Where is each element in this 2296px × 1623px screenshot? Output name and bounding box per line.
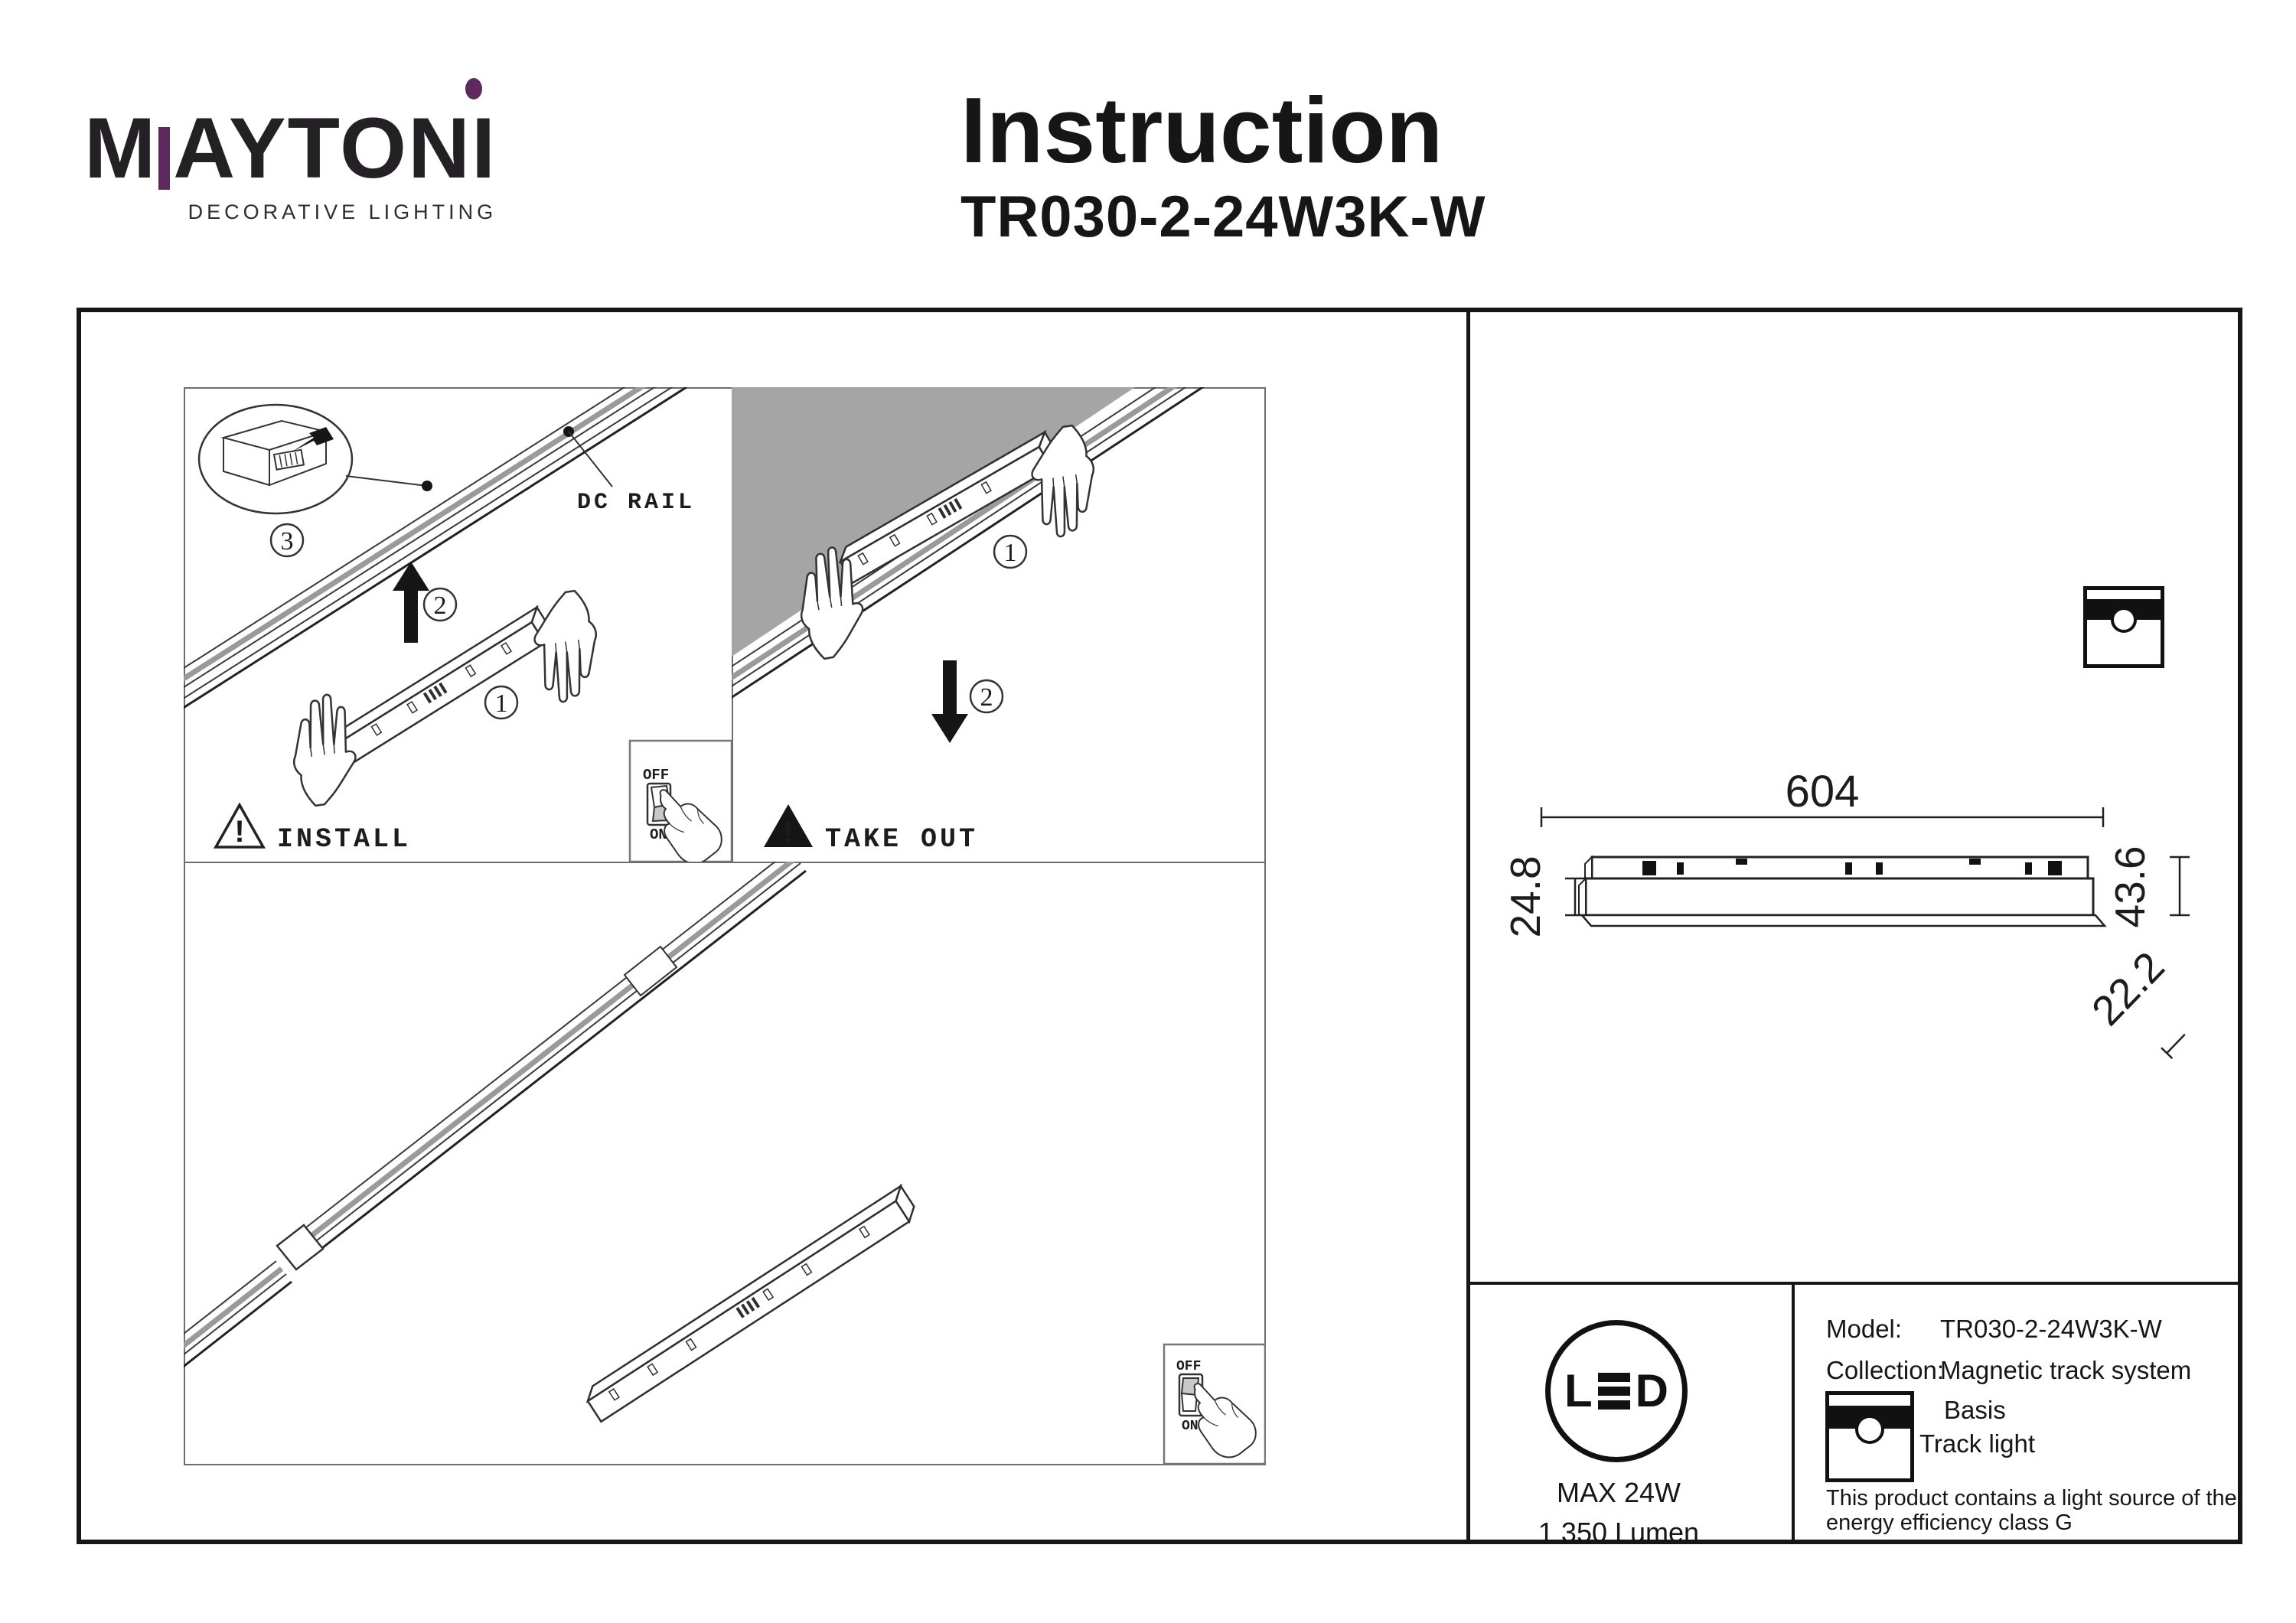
lens-circle <box>1855 1415 1884 1444</box>
warning-mark: ! <box>784 816 794 849</box>
maytoni-wordmark: M AYTON I <box>84 106 497 191</box>
type-basis: Basis <box>1944 1396 2006 1425</box>
width-dim: 22.2 <box>2082 943 2174 1035</box>
step-2-badge: 2 <box>980 683 993 712</box>
led-letter-d: D <box>1636 1368 1668 1414</box>
switch-on-label: ON <box>1182 1419 1199 1434</box>
page-model-code: TR030-2-24W3K-W <box>960 184 1486 250</box>
install-switch-inset: OFF ON <box>630 741 732 863</box>
collection-label: Collection: <box>1826 1356 1944 1385</box>
step-1-badge: 1 <box>1004 539 1017 567</box>
instruction-illustrations: 3 DC RAIL 2 <box>184 387 1266 1465</box>
takeout-panel-art: 1 2 ! TAKE OUT <box>714 387 1211 855</box>
dimension-drawing: 604 24.8 43.6 22.2 <box>1468 308 2242 1282</box>
down-arrow-icon <box>931 660 968 743</box>
maytoni-logo: M AYTON I DECORATIVE LIGHTING <box>84 106 497 224</box>
efficiency-note-line2: energy efficiency class G <box>1826 1511 2073 1536</box>
right-vertical-divider <box>1792 1282 1795 1544</box>
switch-off-label: OFF <box>643 767 669 784</box>
install-caption: INSTALL <box>277 824 411 855</box>
wordmark-purple-bar <box>158 127 170 190</box>
collection-value: Magnetic track system <box>1940 1356 2191 1385</box>
efficiency-note-line1: This product contains a light source of … <box>1826 1486 2237 1511</box>
led-logo: L D <box>1545 1320 1688 1462</box>
led-letter-l: L <box>1564 1368 1593 1414</box>
lens-circle <box>2111 607 2137 633</box>
dc-rail-segment-1 <box>277 850 806 1269</box>
track-light-bar <box>582 1186 919 1422</box>
instruction-sheet: M AYTON I DECORATIVE LIGHTING Instructio… <box>0 0 2296 1623</box>
step-2-badge: 2 <box>434 592 447 620</box>
type-track-light: Track light <box>1919 1429 2035 1458</box>
wordmark-rest: AYTON <box>173 106 471 191</box>
logo-tagline: DECORATIVE LIGHTING <box>84 200 497 224</box>
base-height-dim: 24.8 <box>1502 855 1549 937</box>
warning-mark: ! <box>234 815 244 849</box>
page-title: Instruction <box>960 83 1486 178</box>
overview-switch-inset: OFF ON <box>1164 1344 1265 1464</box>
model-label: Model: <box>1826 1315 1902 1344</box>
model-value: TR030-2-24W3K-W <box>1940 1315 2162 1344</box>
takeout-caption: TAKE OUT <box>825 824 978 855</box>
dc-rail-label: DC RAIL <box>577 490 695 516</box>
dc-rail-segment-2 <box>184 1261 292 1374</box>
fixture-cross-section-icon <box>2083 586 2164 668</box>
wordmark-purple-dot <box>465 78 482 99</box>
wordmark-m: M <box>84 106 157 191</box>
product-type-icon <box>1825 1391 1914 1482</box>
length-dim: 604 <box>1786 767 1860 816</box>
install-panel-art: 3 DC RAIL 2 <box>184 387 732 863</box>
title-block: Instruction TR030-2-24W3K-W <box>960 83 1486 250</box>
right-horizontal-divider <box>1466 1282 2242 1285</box>
overview-panel-art: OFF ON <box>184 850 1265 1464</box>
led-letter-e-bars <box>1598 1373 1630 1410</box>
step-3-badge: 3 <box>281 527 294 556</box>
luminous-flux: 1 350 Lumen <box>1468 1517 1769 1549</box>
step-1-badge: 1 <box>495 689 508 718</box>
max-power: MAX 24W <box>1468 1477 1769 1509</box>
fixture-side-view <box>1579 857 2105 926</box>
callout-dot <box>422 481 432 491</box>
connector-callout: 3 <box>199 405 432 556</box>
switch-off-label: OFF <box>1176 1359 1201 1374</box>
wordmark-i: I <box>471 106 497 191</box>
total-height-dim: 43.6 <box>2106 846 2154 927</box>
